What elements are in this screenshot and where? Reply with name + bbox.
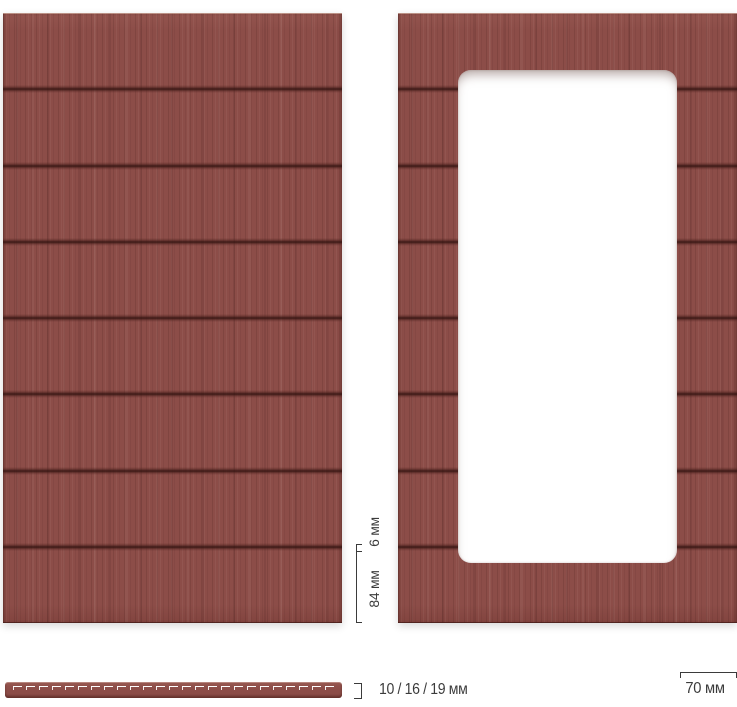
cross-section-tick-marks bbox=[13, 686, 334, 690]
frame-width-label: 70 мм bbox=[685, 680, 724, 698]
bracket-tick bbox=[356, 544, 362, 545]
plank bbox=[3, 242, 342, 318]
plank bbox=[3, 471, 342, 547]
bracket-tick bbox=[356, 622, 362, 623]
plank bbox=[3, 318, 342, 394]
thickness-options-label: 10 / 16 / 19 мм bbox=[379, 681, 467, 699]
plank bbox=[3, 394, 342, 470]
plank bbox=[3, 547, 342, 623]
glass-window-cutout bbox=[458, 70, 677, 563]
facade-spec-diagram: 6 мм 84 мм 10 / 16 / 19 мм 70 мм bbox=[0, 0, 737, 707]
groove-plank-dimension-bracket bbox=[356, 544, 362, 623]
frame-width-bracket bbox=[680, 672, 737, 678]
groove-width-label: 6 мм bbox=[366, 517, 382, 547]
glass-facade-panel bbox=[398, 13, 737, 623]
plank bbox=[3, 89, 342, 165]
thickness-bracket bbox=[354, 683, 362, 699]
plank bbox=[3, 166, 342, 242]
solid-facade-panel bbox=[3, 13, 342, 623]
bracket-tick bbox=[356, 551, 362, 552]
plank bbox=[3, 13, 342, 89]
panel-cross-section bbox=[5, 682, 342, 698]
bracket-stem bbox=[356, 544, 357, 623]
plank-height-label: 84 мм bbox=[366, 570, 382, 607]
